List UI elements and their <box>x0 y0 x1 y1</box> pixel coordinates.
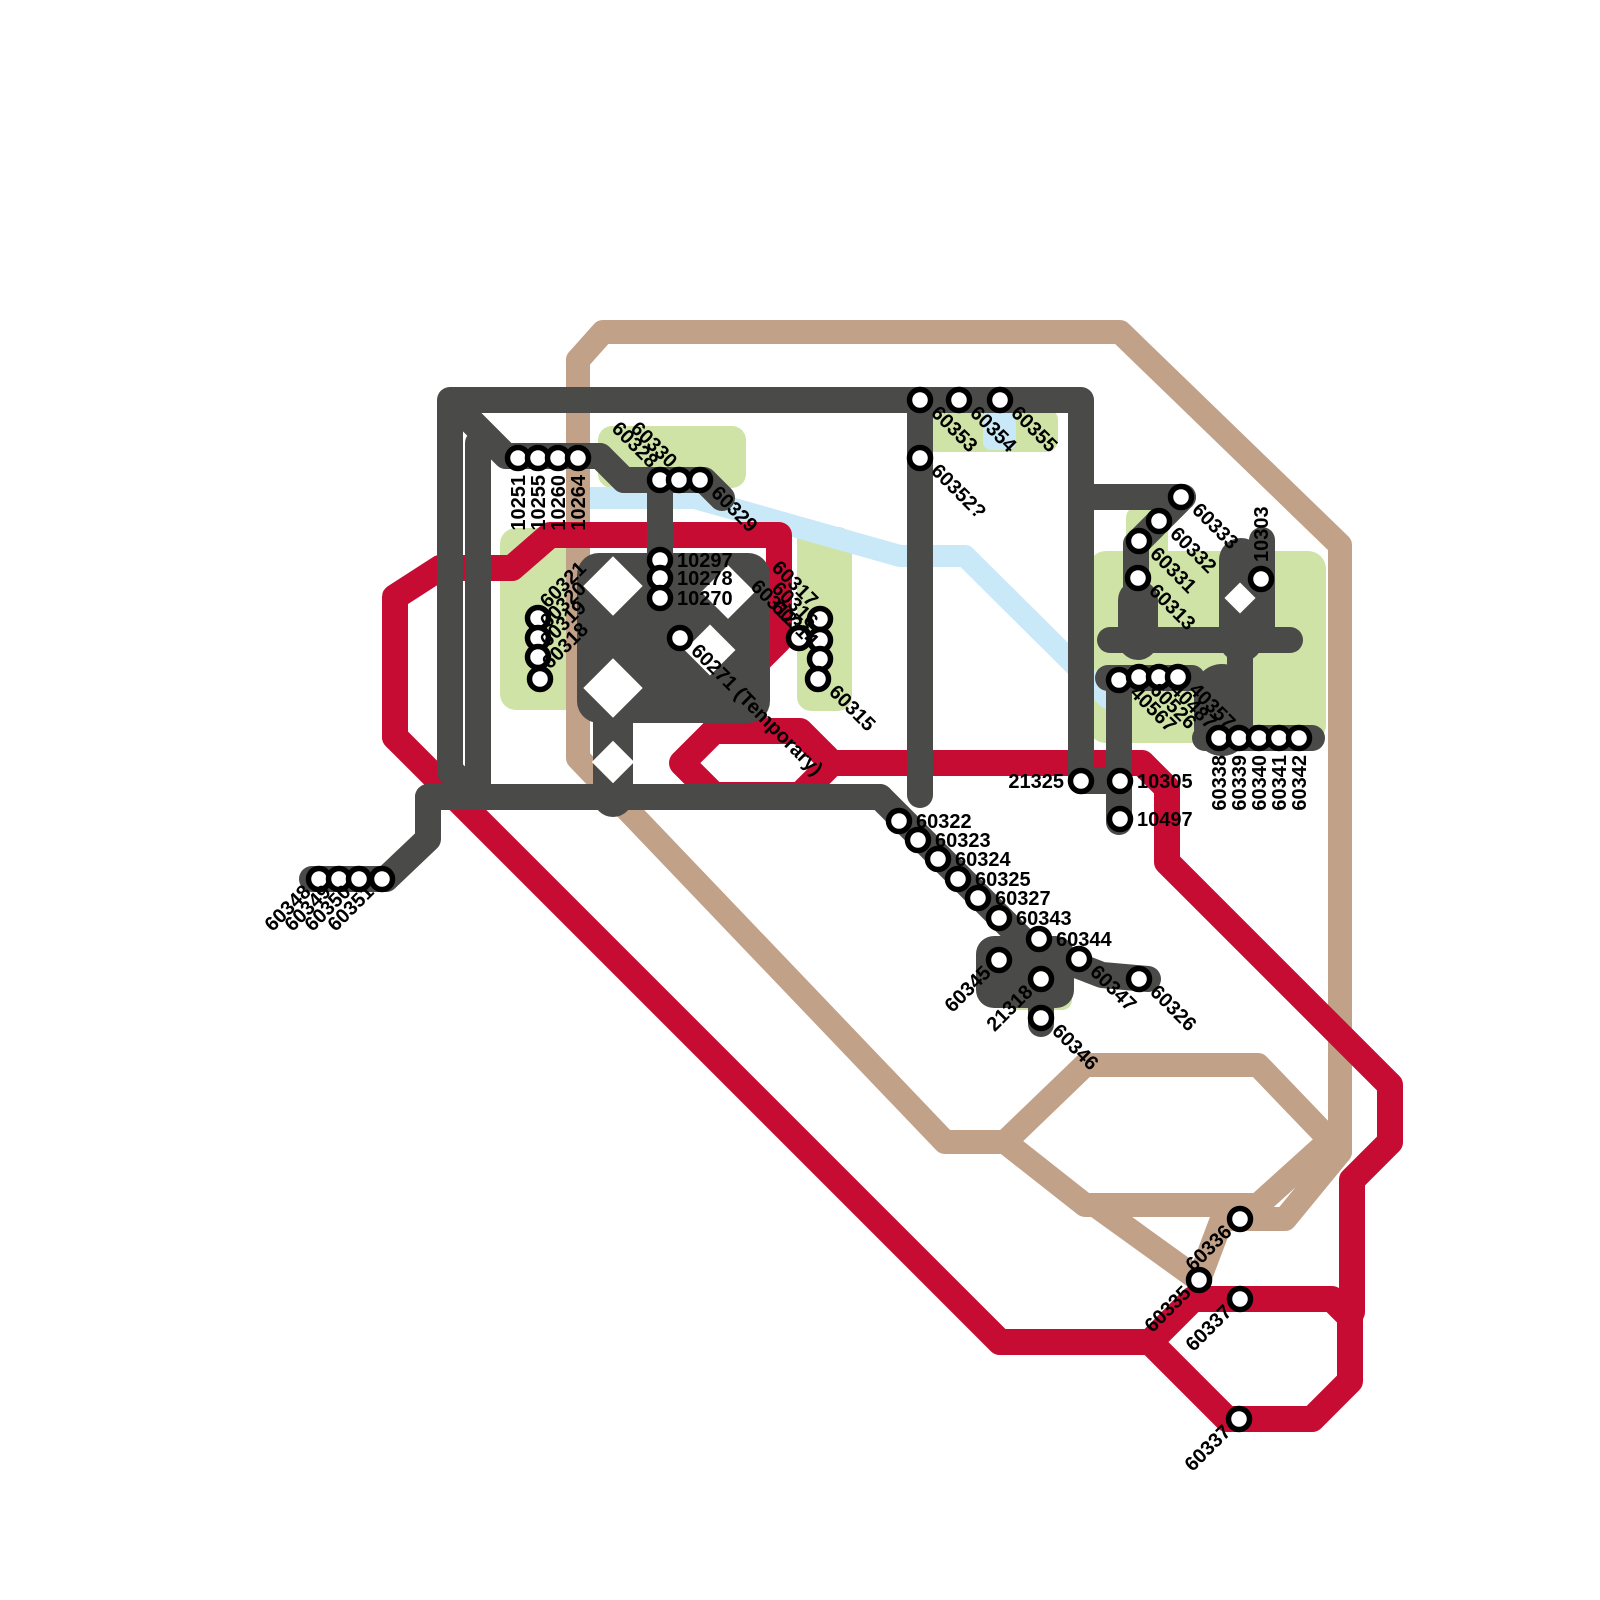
station-label-60341: 60341 <box>1269 755 1291 811</box>
station-marker-60336[interactable] <box>1230 1209 1251 1230</box>
station-marker-60337b[interactable] <box>1229 1409 1250 1430</box>
station-label-60342: 60342 <box>1289 755 1311 811</box>
station-marker-60325[interactable] <box>948 869 969 890</box>
station-marker-60330[interactable] <box>669 470 690 491</box>
station-marker-10264[interactable] <box>568 448 589 469</box>
station-label-10255: 10255 <box>528 475 550 531</box>
station-marker-60344[interactable] <box>1029 929 1050 950</box>
station-label-60344: 60344 <box>1056 929 1112 951</box>
station-marker-60326[interactable] <box>1129 969 1150 990</box>
station-label-21325: 21325 <box>1008 771 1064 793</box>
station-marker-60353[interactable] <box>910 390 931 411</box>
route-tan-stadium-loop <box>1005 1065 1330 1205</box>
station-label-10497: 10497 <box>1137 809 1193 831</box>
station-label-10278: 10278 <box>677 568 733 590</box>
station-label-60343: 60343 <box>1016 908 1072 930</box>
station-marker-21325[interactable] <box>1071 771 1092 792</box>
station-marker-60351[interactable] <box>372 869 393 890</box>
station-marker-10497[interactable] <box>1110 809 1131 830</box>
station-label-60337b: 60337 <box>1181 1421 1236 1476</box>
station-marker-60355[interactable] <box>990 390 1011 411</box>
station-marker-21318[interactable] <box>1031 969 1052 990</box>
route-red-long-diagonal <box>395 737 1150 1342</box>
station-marker-60347[interactable] <box>1069 949 1090 970</box>
station-marker-60318[interactable] <box>530 669 551 690</box>
station-marker-10305[interactable] <box>1110 771 1131 792</box>
station-label-10270: 10270 <box>677 588 733 610</box>
station-label-60326: 60326 <box>1145 981 1200 1036</box>
station-marker-60271[interactable] <box>670 628 691 649</box>
station-marker-60345[interactable] <box>989 950 1010 971</box>
station-marker-60354[interactable] <box>949 390 970 411</box>
station-label-60339: 60339 <box>1229 755 1251 811</box>
station-marker-60313[interactable] <box>1128 568 1149 589</box>
station-label-60340: 60340 <box>1249 755 1271 811</box>
route-tan-branch-60336 <box>1199 1152 1340 1280</box>
route-red-south-loop <box>1150 1299 1350 1419</box>
station-label-10264: 10264 <box>568 474 590 530</box>
station-label-60352: 60352? <box>926 460 990 524</box>
transit-map: 1025110255102601026460328603306032960353… <box>0 0 1600 1600</box>
transit-map-canvas: 1025110255102601026460328603306032960353… <box>0 0 1600 1600</box>
station-label-10260: 10260 <box>548 475 570 531</box>
station-marker-60329[interactable] <box>690 470 711 491</box>
station-marker-10270[interactable] <box>650 588 671 609</box>
station-label-10251: 10251 <box>508 475 530 531</box>
route-gray-terminus-west <box>312 797 428 879</box>
station-label-10305: 10305 <box>1137 771 1193 793</box>
station-marker-60346[interactable] <box>1031 1008 1052 1029</box>
station-label-10303: 10303 <box>1251 506 1273 562</box>
station-label-60324: 60324 <box>955 849 1011 871</box>
station-label-60338: 60338 <box>1209 755 1231 811</box>
station-marker-60352[interactable] <box>910 448 931 469</box>
station-label-60327: 60327 <box>995 888 1051 910</box>
station-marker-60342[interactable] <box>1289 728 1310 749</box>
station-marker-60315[interactable] <box>808 669 829 690</box>
station-marker-60331[interactable] <box>1129 531 1150 552</box>
station-marker-60332[interactable] <box>1149 511 1170 532</box>
station-marker-10303[interactable] <box>1251 569 1272 590</box>
station-marker-60333[interactable] <box>1171 487 1192 508</box>
station-marker-60322[interactable] <box>889 811 910 832</box>
station-marker-60343[interactable] <box>989 908 1010 929</box>
station-marker-60337a[interactable] <box>1230 1289 1251 1310</box>
